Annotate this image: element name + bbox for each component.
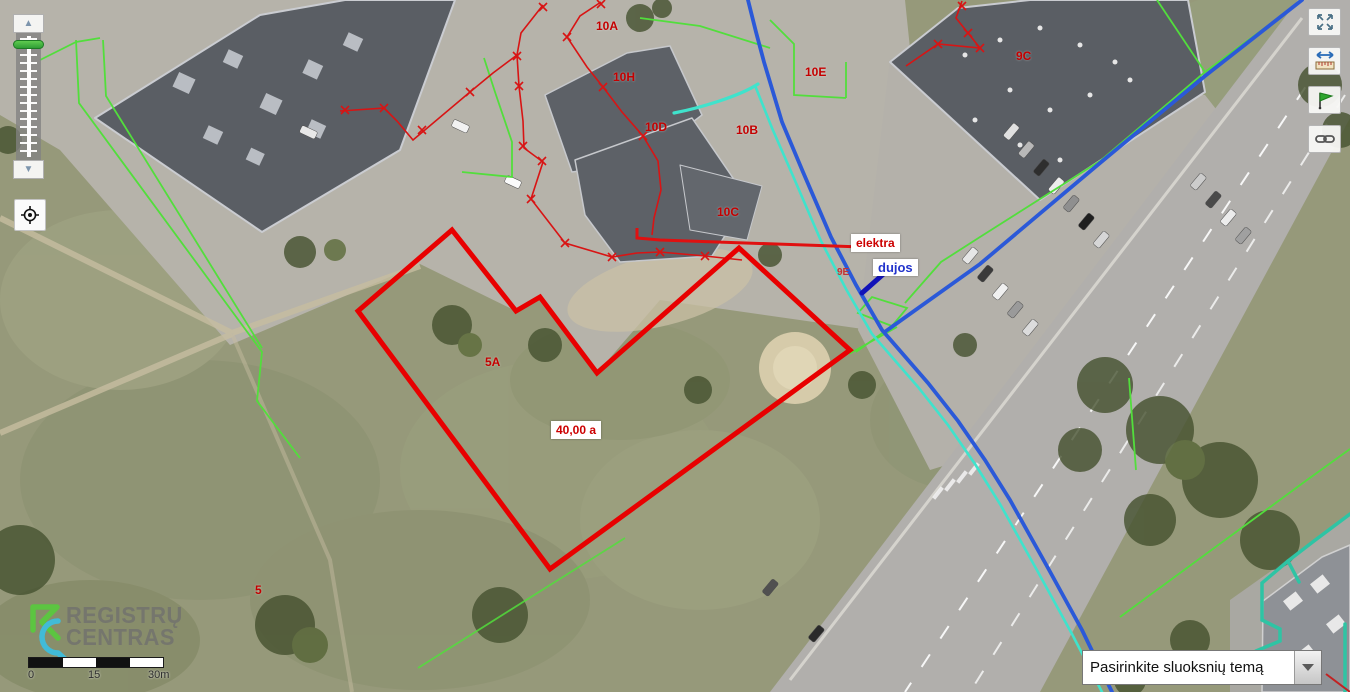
flag-button[interactable]: [1308, 86, 1341, 114]
dropdown-arrow-button[interactable]: [1294, 651, 1321, 684]
fullscreen-icon: [1315, 13, 1335, 31]
scale-bar-segments: [28, 657, 164, 668]
locate-button[interactable]: [14, 199, 46, 231]
logo-text-line2: CENTRAS: [66, 626, 183, 648]
map-label-10C: 10C: [717, 205, 739, 219]
map-label-10E: 10E: [805, 65, 826, 79]
link-icon: [1314, 131, 1336, 147]
zoom-slider-track[interactable]: [16, 33, 41, 160]
logo-text-line1: REGISTRŲ: [66, 604, 183, 626]
map-viewer: 10A10H10D10E10B10C9C9E5A540,00 aelektrad…: [0, 0, 1350, 692]
zoom-in-icon: ▲: [24, 18, 34, 29]
measure-icon: [1314, 51, 1336, 71]
map-label-5A: 5A: [485, 355, 500, 369]
scale-label-30: 30m: [148, 669, 169, 681]
measure-button[interactable]: [1308, 47, 1341, 75]
aerial-map[interactable]: [0, 0, 1350, 692]
zoom-slider-handle[interactable]: [13, 40, 44, 49]
locate-target-icon: [20, 205, 40, 225]
scale-bar: 0 15 30m: [28, 657, 164, 668]
zoom-out-button[interactable]: ▼: [13, 160, 44, 179]
scale-label-15: 15: [88, 669, 100, 681]
map-label-5: 5: [255, 583, 262, 597]
sand-patch-core: [773, 346, 817, 390]
flag-icon: [1315, 90, 1335, 110]
zoom-out-icon: ▼: [24, 164, 34, 175]
map-label-elektra: elektra: [851, 234, 900, 252]
zoom-in-button[interactable]: ▲: [13, 14, 44, 33]
map-label-10H: 10H: [613, 70, 635, 84]
scale-label-0: 0: [28, 669, 34, 681]
zoom-slider-bar: [27, 36, 31, 157]
map-label-9E: 9E: [837, 267, 849, 278]
map-label-9C: 9C: [1016, 49, 1031, 63]
map-label-10D: 10D: [645, 120, 667, 134]
fullscreen-button[interactable]: [1308, 8, 1341, 36]
layer-theme-select[interactable]: Pasirinkite sluoksnių temą: [1082, 650, 1322, 685]
map-label-10A: 10A: [596, 19, 618, 33]
logo-monogram-icon: [24, 598, 70, 664]
chevron-down-icon: [1302, 664, 1314, 671]
map-label-10B: 10B: [736, 123, 758, 137]
map-label-area-40a: 40,00 a: [551, 421, 601, 439]
map-label-dujos: dujos: [873, 259, 918, 276]
link-button[interactable]: [1308, 125, 1341, 153]
layer-theme-value: Pasirinkite sluoksnių temą: [1083, 659, 1294, 676]
